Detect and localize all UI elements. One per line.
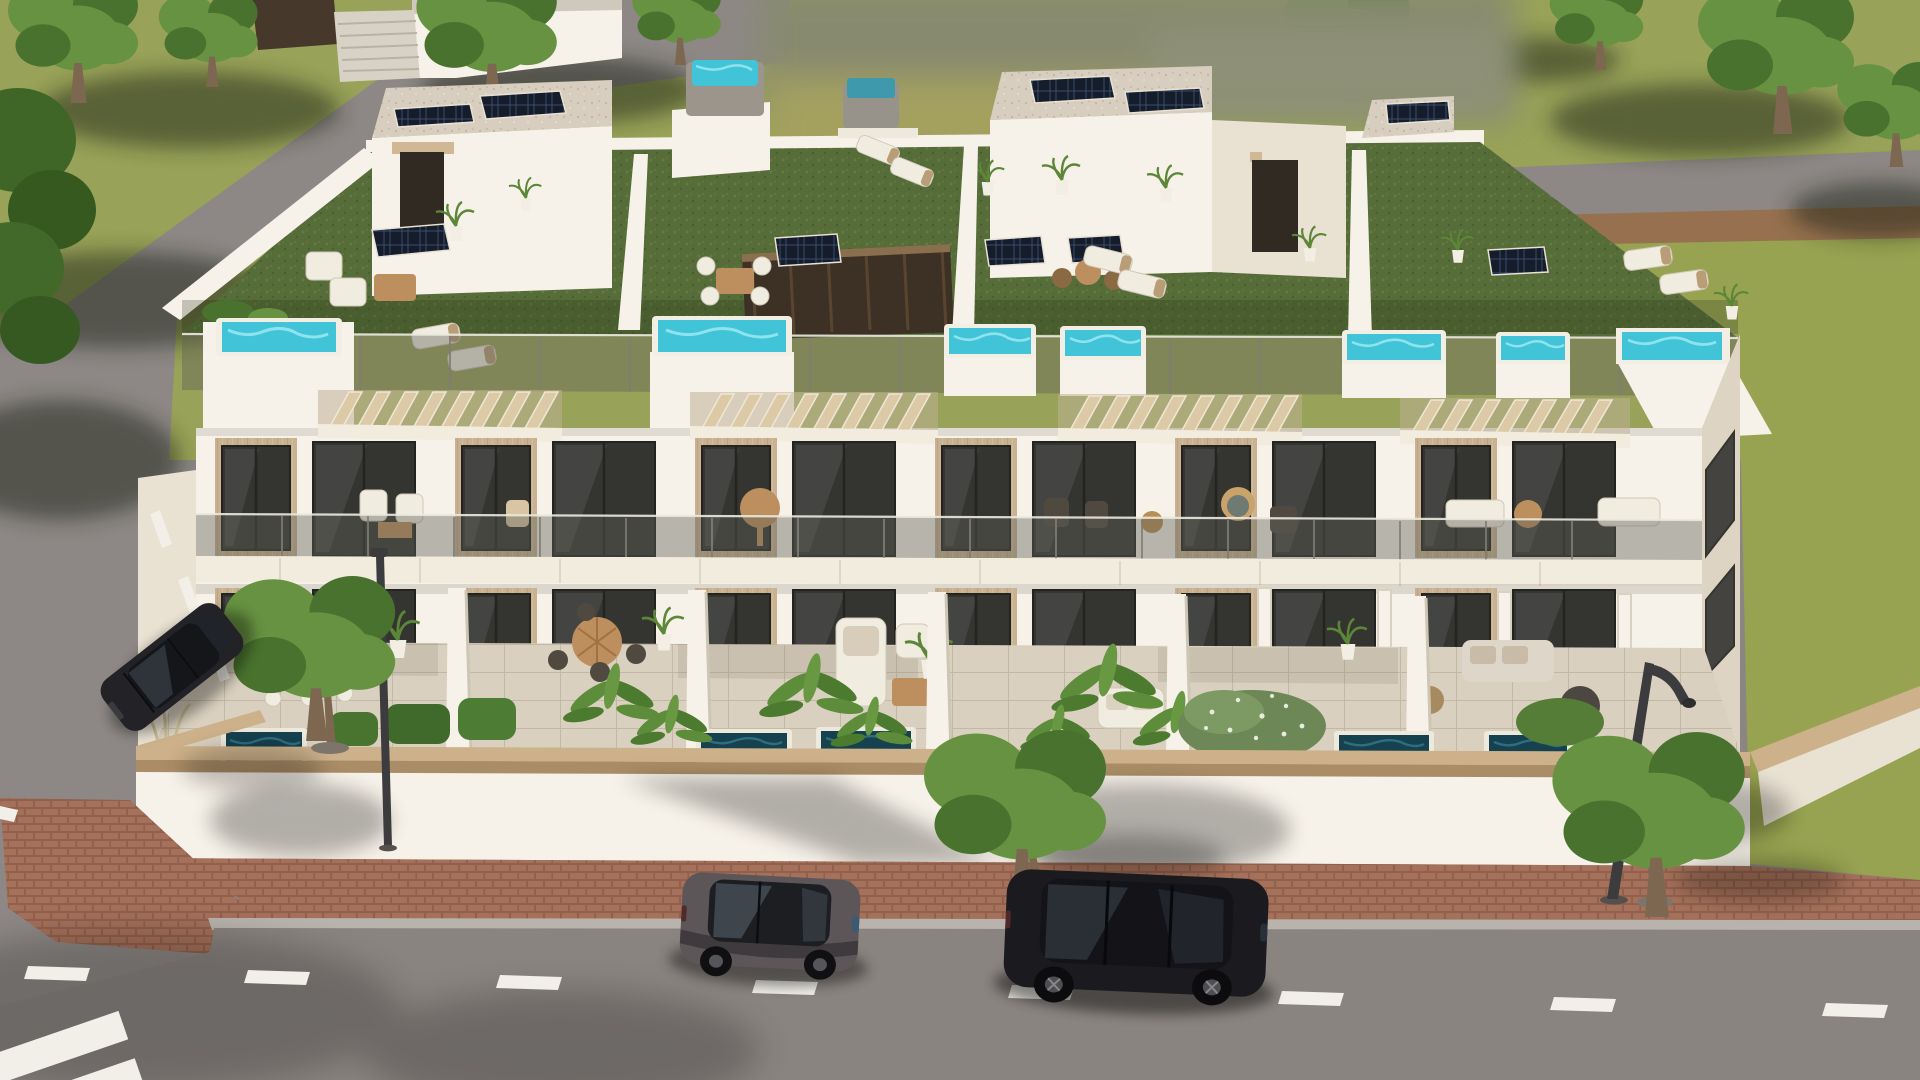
render-canvas bbox=[0, 0, 1920, 1080]
solar-panel bbox=[1125, 88, 1204, 113]
architectural-render bbox=[0, 0, 1920, 1080]
roof-access-door bbox=[1252, 160, 1298, 252]
roof-pool-5 bbox=[1342, 330, 1446, 398]
garden-fence bbox=[252, 0, 338, 50]
roof-tower-left bbox=[372, 80, 612, 296]
pergola-segment bbox=[318, 390, 562, 442]
solar-panel bbox=[775, 234, 841, 266]
pergola-segment bbox=[690, 392, 938, 444]
roof-access-door bbox=[400, 152, 444, 232]
roof-pool-3 bbox=[944, 324, 1036, 396]
balcony-balustrade bbox=[196, 514, 1702, 560]
roof-coffee-table bbox=[374, 274, 416, 301]
roof-tower-small bbox=[1362, 96, 1454, 138]
suv-car bbox=[993, 868, 1279, 1020]
hatchback-car bbox=[667, 871, 872, 991]
solar-panel bbox=[985, 236, 1045, 266]
roof-pool-6 bbox=[1496, 332, 1570, 398]
floor-slab-band bbox=[196, 556, 1702, 586]
solar-panel bbox=[1488, 247, 1548, 275]
roof-hot-tub-teal bbox=[672, 60, 770, 178]
solar-panel bbox=[1030, 76, 1115, 103]
roof-sofa bbox=[306, 252, 342, 280]
roof-pool-4 bbox=[1060, 326, 1146, 396]
solar-panel bbox=[1386, 101, 1450, 124]
